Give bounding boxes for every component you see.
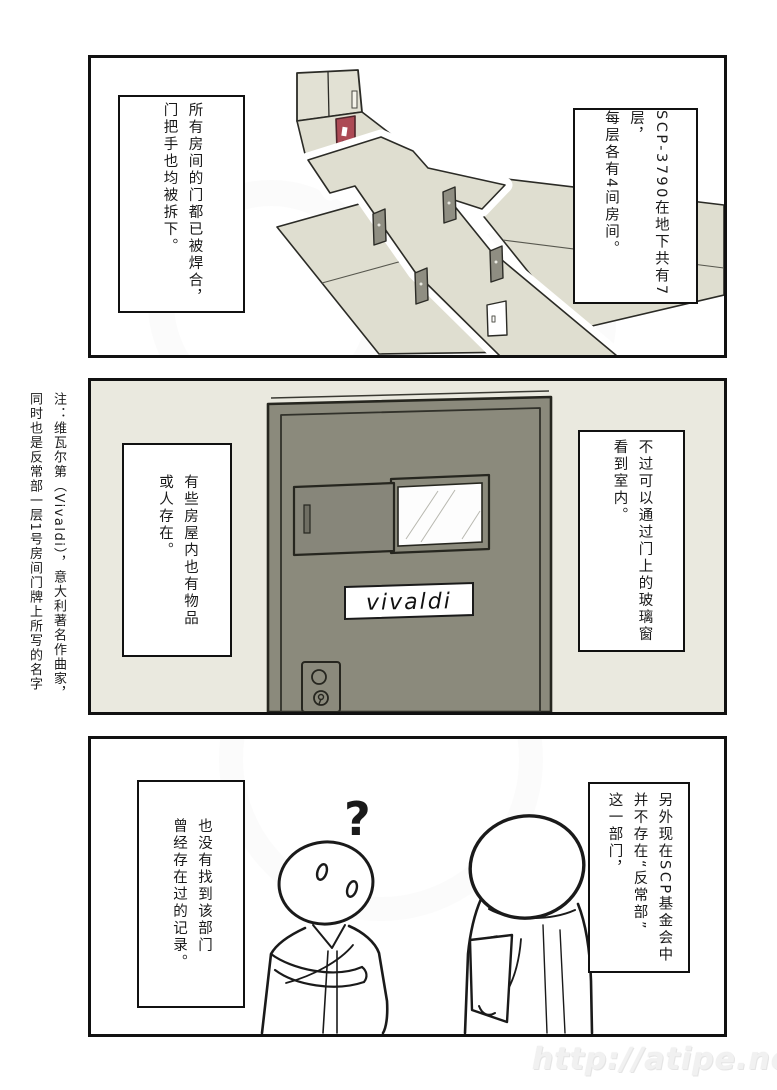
margin-translator-note: 注：维瓦尔第（Vivaldi），意大利著名作曲家， 同时也是反常部一层1号房间门… [8,392,70,710]
door-window [294,475,489,555]
door-lock-plate [302,662,340,712]
caption-text: 另外现在SCP基金会中 并不存在“反常部” 这一部门， [602,792,677,964]
nameplate-text: vivaldi [366,589,452,615]
caption-text: 也没有找到该部门 曾经存在过的记录。 [166,818,216,971]
caption-box-department-nonexistent: 另外现在SCP基金会中 并不存在“反常部” 这一部门， [588,782,690,973]
caption-box-scp3790-layout: SCP-3790在地下共有7层， 每层各有4间房间。 [573,108,698,304]
question-mark: ? [344,792,371,846]
gray-door [490,246,503,282]
gray-door [373,209,386,245]
caption-box-doors-welded: 所有房间的门都已被焊合， 门把手也均被拆下。 [118,95,245,313]
caption-text: 有些房屋内也有物品 或人存在。 [152,474,202,627]
coat-lapel [313,925,345,948]
door-nameplate: vivaldi [345,583,473,619]
clipboard [470,935,512,1022]
caption-box-no-records: 也没有找到该部门 曾经存在过的记录。 [137,780,245,1008]
gray-door [415,268,428,304]
slider-handle [304,505,310,533]
panel-3-researchers: ? 另外现在SCP基金会中 并不存在“反常部” 这一部门， 也没有找到该部门 曾… [88,736,727,1037]
caption-text: SCP-3790在地下共有7层， 每层各有4间房间。 [598,110,673,302]
panel-2-cell-door: vivaldi 不过可以通过门上的玻璃窗 看到室内。 有些房屋内也有物品 或人存… [88,378,727,715]
caption-box-rooms-contents: 有些房屋内也有物品 或人存在。 [122,443,232,657]
site-watermark: http://atipe.net/ [532,1042,772,1077]
figure-right-researcher [462,807,592,1033]
right-figure-head [462,807,592,927]
coat-seam [560,930,565,1033]
comic-page: 注：维瓦尔第（Vivaldi），意大利著名作曲家， 同时也是反常部一层1号房间门… [0,0,777,1090]
white-door [487,301,507,336]
coat-seam [543,925,547,1033]
caption-text: 不过可以通过门上的玻璃窗 看到室内。 [607,439,657,643]
gray-door [443,187,456,223]
caption-box-glass-window: 不过可以通过门上的玻璃窗 看到室内。 [578,430,685,652]
window-glass [398,483,482,546]
elevator-call-panel [352,91,357,108]
caption-text: 所有房间的门都已被焊合， 门把手也均被拆下。 [157,102,207,306]
panel-1-floorplan: SCP-3790在地下共有7层， 每层各有4间房间。 所有房间的门都已被焊合， … [88,55,727,358]
